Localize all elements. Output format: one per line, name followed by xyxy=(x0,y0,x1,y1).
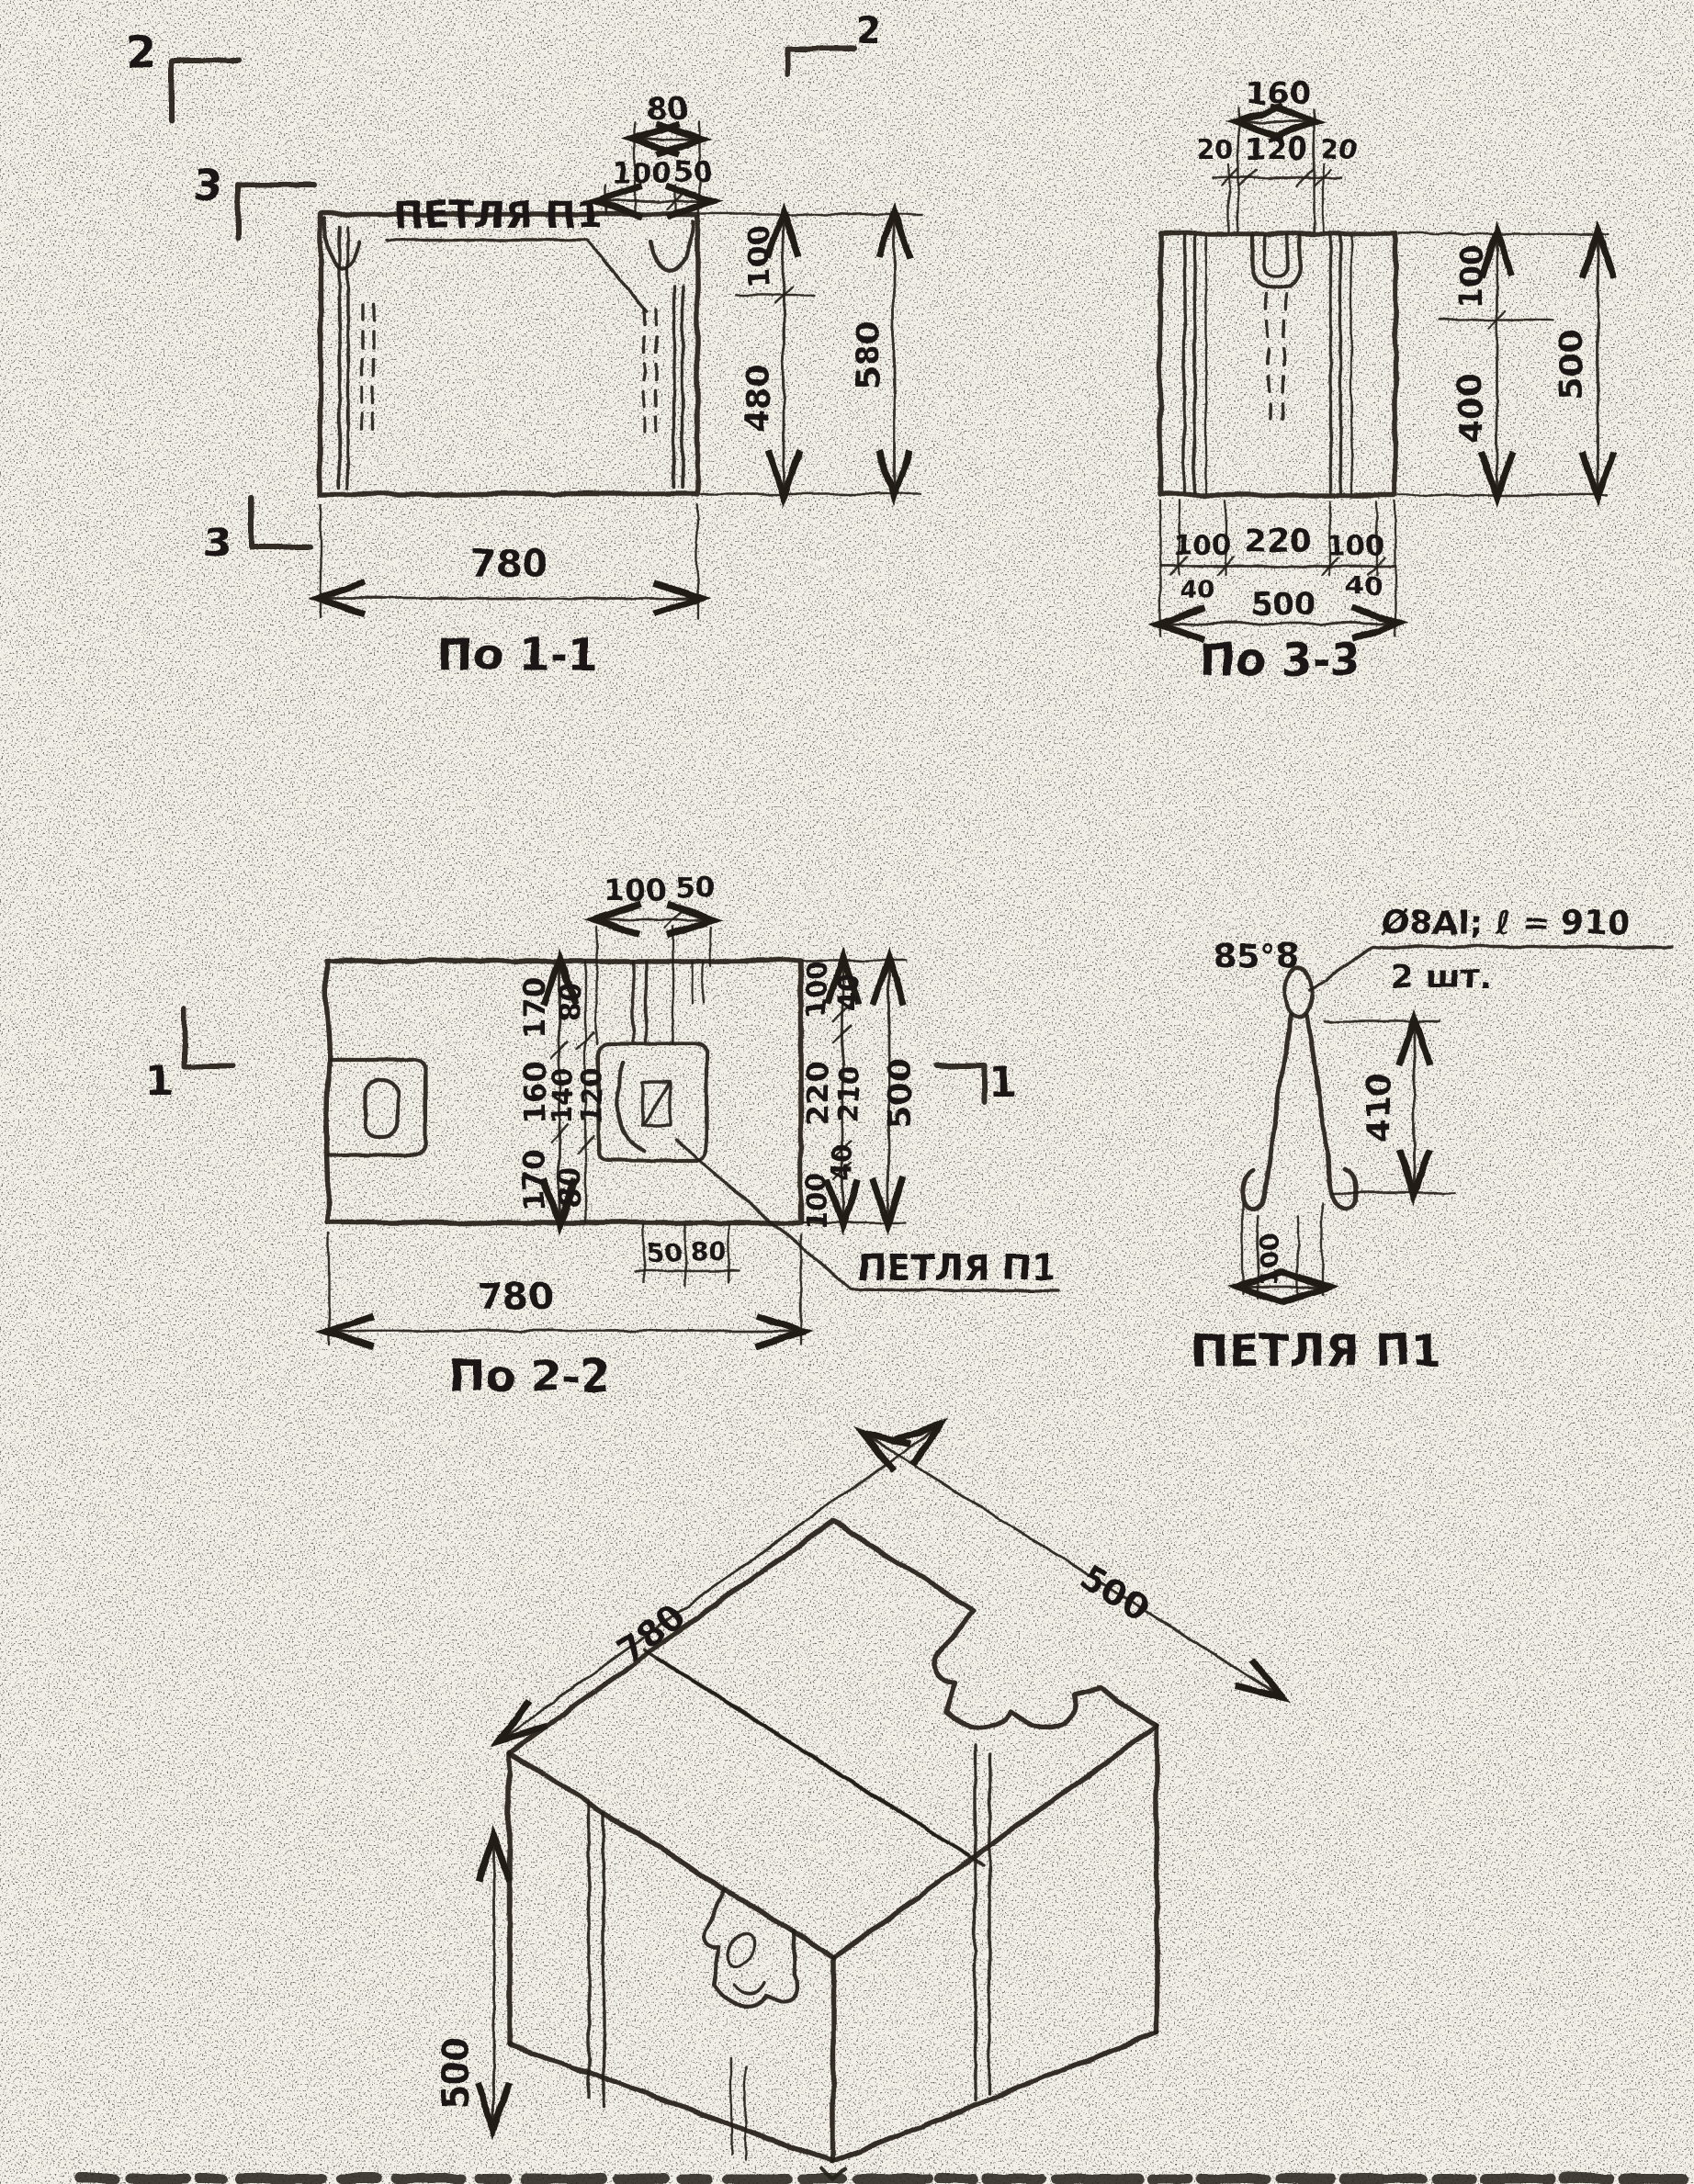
dim-label-80b: 80 xyxy=(553,1166,586,1206)
section-label-2-right: 2 xyxy=(854,9,880,51)
dim-label-r500: 500 xyxy=(880,1058,918,1127)
section-label-3-bottom: 3 xyxy=(203,520,232,567)
dim-label-160: 160 xyxy=(1245,74,1310,111)
dim-label-100b: 100 xyxy=(1326,529,1383,561)
dim-label-40a: 40 xyxy=(1179,573,1214,603)
dim-label-100: 100 xyxy=(1253,1232,1283,1285)
dim-label-400: 400 xyxy=(1451,372,1489,441)
note-line2: 2 шт. xyxy=(1389,957,1490,995)
dim-label-40b: 40 xyxy=(1346,569,1382,600)
dim-label-n80: 80 xyxy=(690,1234,726,1265)
dim-label-100r: 100 xyxy=(740,224,775,287)
caption-po-3-3: По 3-3 xyxy=(1198,634,1361,685)
dim-label-170a: 170 xyxy=(515,975,551,1039)
section-label-1-left: 1 xyxy=(144,1056,173,1103)
dim-label-20b: 20 xyxy=(1319,133,1356,164)
dim-label-80: 80 xyxy=(645,89,687,125)
dim-label-580: 580 xyxy=(849,320,887,388)
dim-label-220: 220 xyxy=(1245,522,1310,558)
dim-label-410: 410 xyxy=(1360,1072,1397,1141)
dim-label-780: 780 xyxy=(469,542,547,584)
dim-label-500b: 500 xyxy=(1250,585,1316,622)
dim-label-140: 140 xyxy=(546,1066,578,1124)
caption-po-1-1: По 1-1 xyxy=(435,628,598,680)
section-label-3-top: 3 xyxy=(192,159,221,208)
dim-label-100t: 100 xyxy=(603,872,666,907)
section-label-2-left: 2 xyxy=(125,27,154,76)
dim-label-100r: 100 xyxy=(1452,244,1488,308)
drawing-canvas: 2 2 3 3 1 1 ПЕТЛЯ П1 80 100 xyxy=(0,0,1694,2184)
section-label-1-right: 1 xyxy=(988,1058,1016,1105)
dim-label-100a: 100 xyxy=(1172,529,1230,561)
petlya-label: ПЕТЛЯ П1 xyxy=(856,1246,1055,1287)
corner-label: 85°8 xyxy=(1213,937,1298,974)
dim-label-r100b: 100 xyxy=(800,1171,832,1229)
dim-label-170b: 170 xyxy=(515,1148,551,1211)
dim-label-r40a: 40 xyxy=(831,973,864,1011)
note-line1: Ø8АI; ℓ = 910 xyxy=(1380,904,1629,941)
dim-label-120: 120 xyxy=(1244,129,1307,165)
dim-label-500-height: 500 xyxy=(435,2035,475,2108)
petlya-label: ПЕТЛЯ П1 xyxy=(392,193,601,235)
scanned-drawing-page: 2 2 3 3 1 1 ПЕТЛЯ П1 80 100 xyxy=(0,0,1694,2184)
dim-label-120: 120 xyxy=(575,1066,607,1124)
dim-label-500r: 500 xyxy=(1553,329,1590,398)
caption-petlya-p1: ПЕТЛЯ П1 xyxy=(1191,1324,1441,1376)
dim-label-r100a: 100 xyxy=(800,960,832,1018)
dim-label-480: 480 xyxy=(739,362,776,431)
dim-label-20a: 20 xyxy=(1196,133,1233,164)
dim-label-100: 100 xyxy=(611,156,671,189)
dim-label-80a: 80 xyxy=(553,981,586,1020)
dim-label-50: 50 xyxy=(672,154,711,187)
caption-po-2-2: По 2-2 xyxy=(447,1350,610,1402)
dim-label-r220: 220 xyxy=(798,1062,834,1125)
dim-label-n50: 50 xyxy=(646,1236,682,1266)
dim-label-50t: 50 xyxy=(673,872,713,905)
dim-label-780: 780 xyxy=(476,1275,553,1317)
dim-label-r210: 210 xyxy=(832,1064,864,1122)
